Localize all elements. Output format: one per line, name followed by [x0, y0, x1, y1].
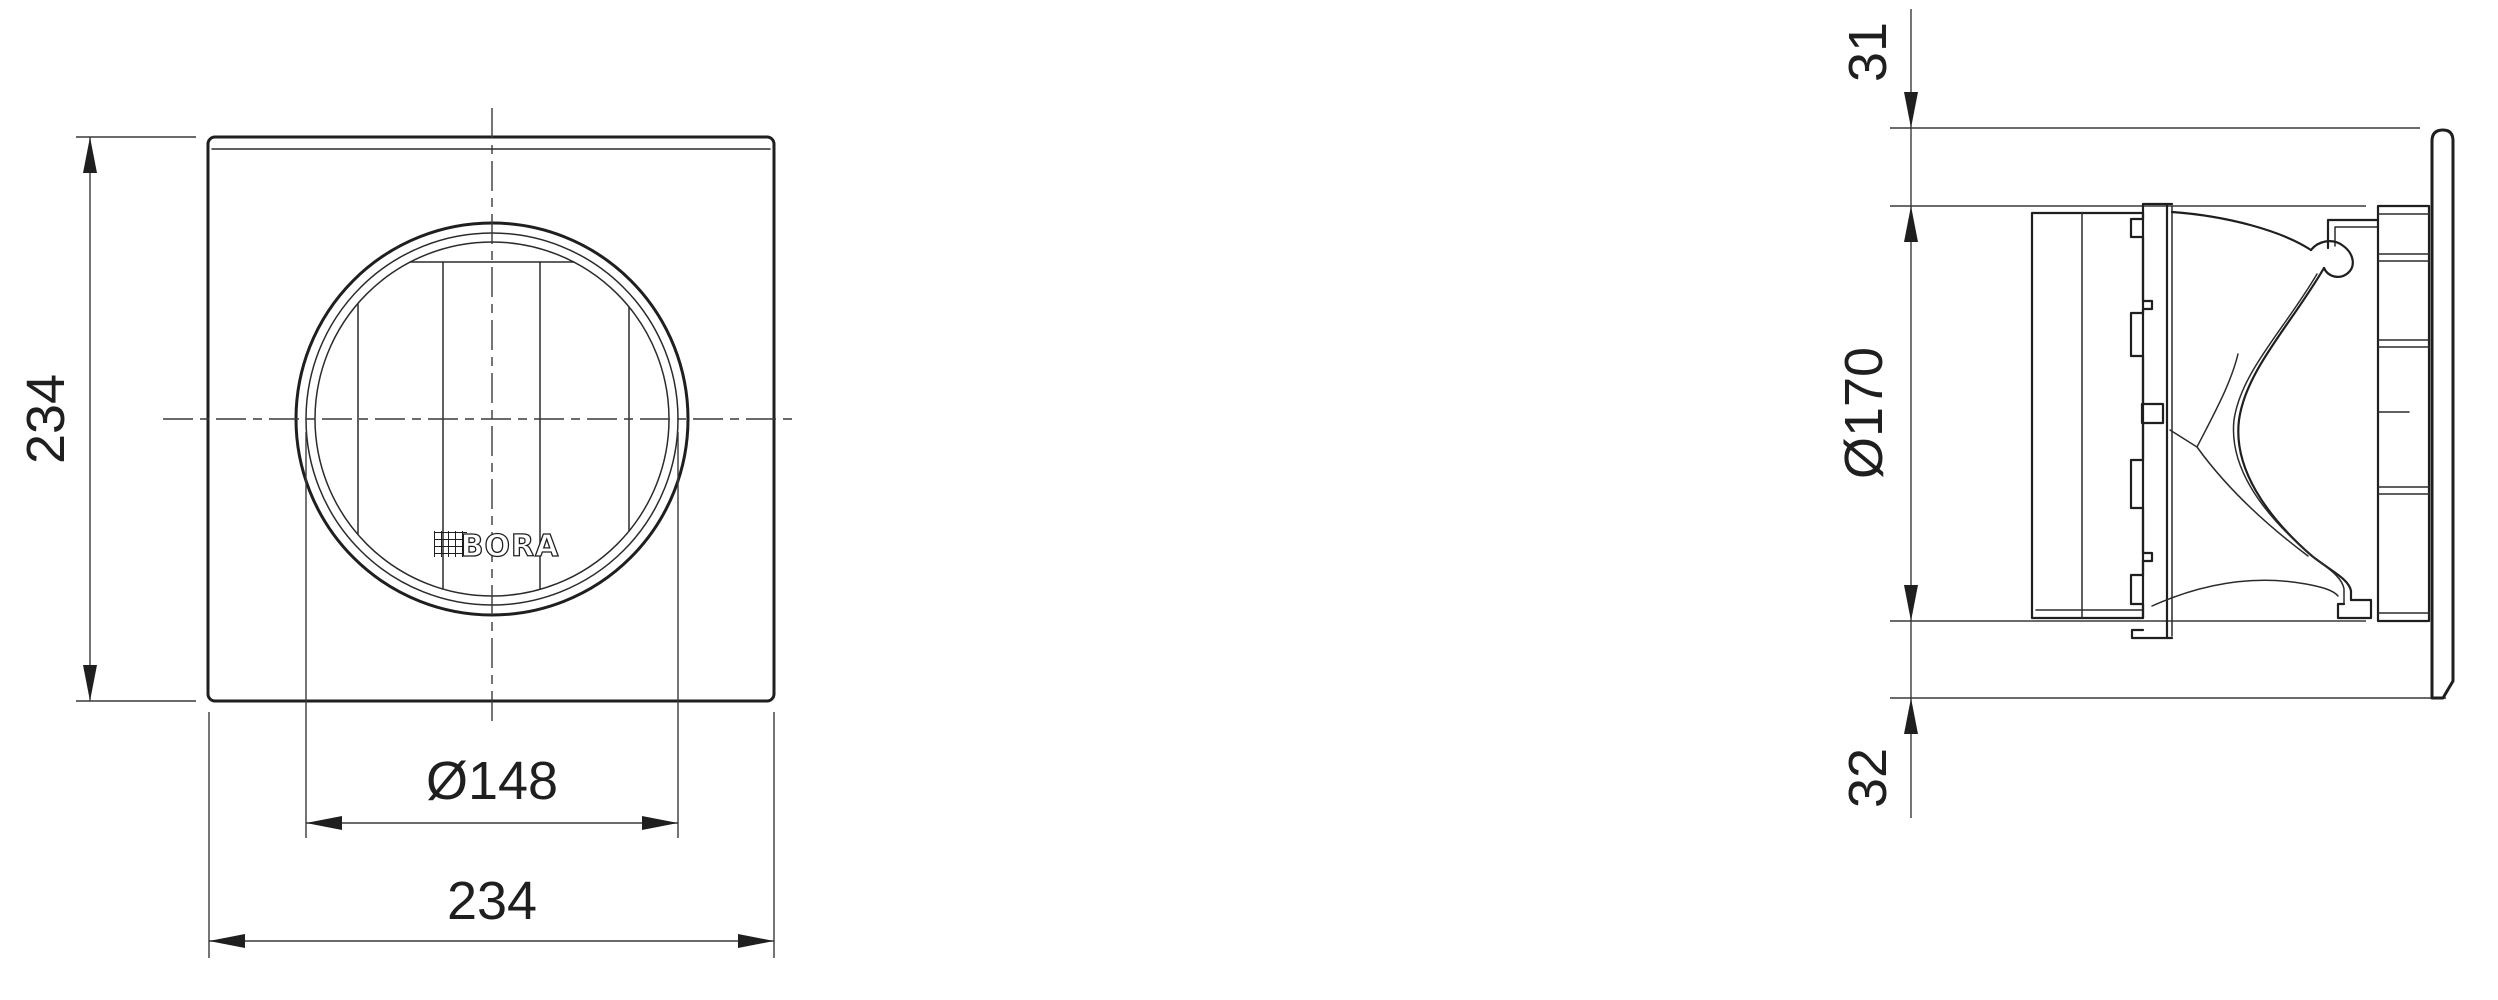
arrowhead-left [306, 816, 342, 830]
duct-tube [2032, 213, 2143, 618]
wall-plate-outline [2432, 130, 2453, 698]
bottom-gap-dimension-label: 32 [1838, 748, 1898, 808]
top-gap-dimension-label: 31 [1838, 22, 1898, 82]
funnel-s-curve-outer [2238, 268, 2351, 600]
arrowhead-right [738, 934, 774, 948]
front-view: BORA Ø148 234 234 [16, 108, 799, 958]
duct-diameter-dimension-label: Ø170 [1834, 347, 1894, 479]
side-view: 31 Ø170 32 [1834, 9, 2453, 818]
arrowhead-left [209, 934, 245, 948]
wall-plate [2432, 130, 2453, 698]
funnel-inner-edge-lower [2197, 447, 2308, 556]
funnel-bottom-edge [2152, 580, 2338, 606]
funnel-hook-nose [2311, 241, 2353, 277]
dimension-drawing-page: BORA Ø148 234 234 [0, 0, 2498, 1000]
arrowhead-top [83, 137, 97, 173]
arrowhead-down [1904, 92, 1918, 128]
notched-connector [2131, 204, 2172, 638]
arrowhead-up [1904, 698, 1918, 734]
width-dimension-label: 234 [447, 871, 537, 931]
funnel-top-rim [2172, 212, 2311, 250]
mounting-flange [2378, 206, 2429, 621]
clip-block [2142, 404, 2163, 423]
arrowhead-bottom [83, 665, 97, 701]
arrowhead-up [1904, 206, 1918, 242]
flange-rib-pair [2378, 487, 2429, 494]
arrowhead-right [642, 816, 678, 830]
funnel-inner-edge-upper [2170, 354, 2238, 447]
height-dimension-label: 234 [16, 374, 76, 464]
arrowhead-down [1904, 585, 1918, 621]
funnel-collar-inner [2335, 227, 2378, 246]
dimension-width-234: 234 [209, 712, 774, 958]
flange-rib-pair [2378, 254, 2429, 261]
technical-drawing: BORA Ø148 234 234 [0, 0, 2498, 1000]
duct-tube-body [2032, 213, 2143, 618]
flange-body [2378, 206, 2429, 621]
bora-logo-text: BORA [461, 529, 560, 564]
funnel-foot [2338, 600, 2371, 618]
flange-rib-pair [2378, 340, 2429, 347]
funnel-profile [2152, 212, 2378, 618]
bore-dimension-label: Ø148 [426, 751, 558, 811]
bora-logo: BORA [434, 529, 559, 564]
